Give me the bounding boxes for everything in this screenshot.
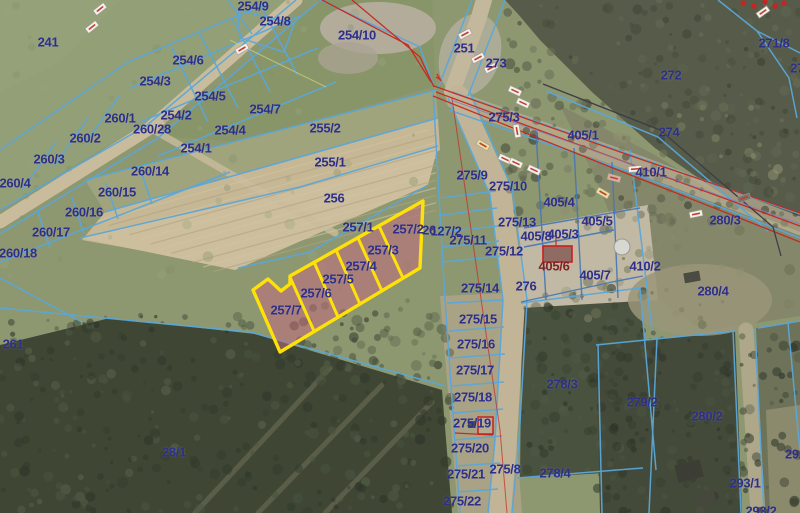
- tank-icon: [614, 239, 630, 255]
- utility-tag-icon: [628, 165, 641, 172]
- shed-icon: [468, 421, 475, 428]
- building-405-6: [543, 246, 572, 262]
- building-275-19: [478, 417, 493, 434]
- map-canvas[interactable]: 241254/9254/8254/10254/6254/3254/5254/22…: [0, 0, 800, 513]
- aerial-basemap: [0, 0, 800, 513]
